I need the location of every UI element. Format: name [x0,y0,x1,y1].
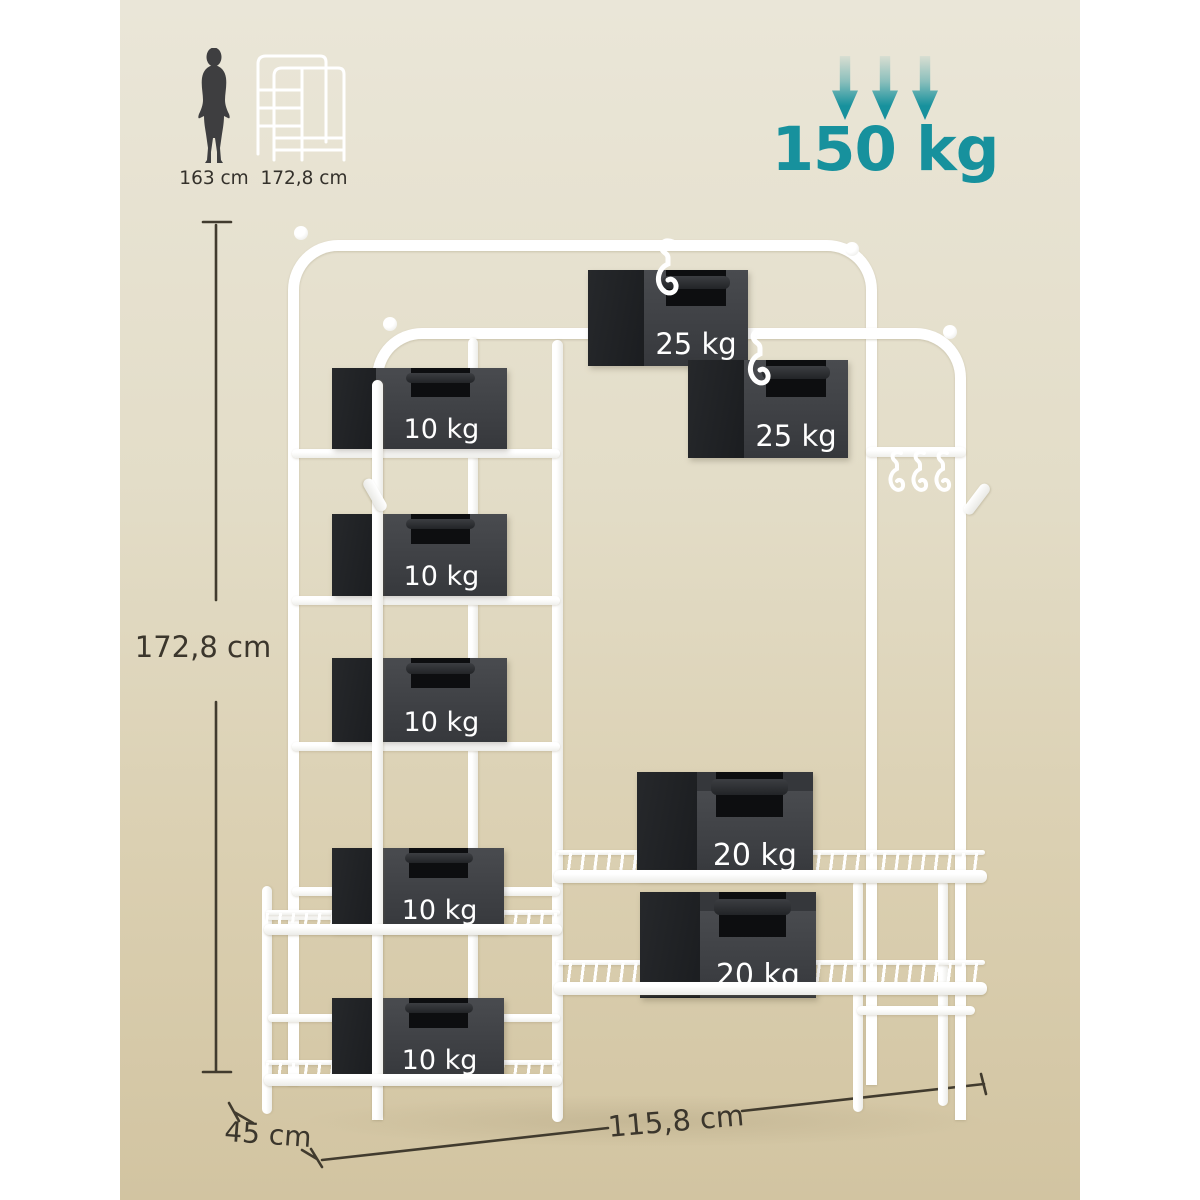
s-hook-icon [652,238,680,300]
right-bench-upper-front-bar [554,870,987,883]
weight-handle-notch [411,514,471,544]
left-bench-top-front-bar [264,924,562,935]
weight-side-face [332,368,376,449]
mini-rack-icon [250,42,354,164]
weight-handle [406,373,475,383]
right-bench-lower-front-bar [554,982,987,995]
ball-finial [383,317,397,331]
weight-handle-notch [411,658,471,688]
product-infographic: 172,8 cm 45 cm 115,8 cm 163 cm 172,8 cm … [0,0,1200,1200]
weight-handle-notch [409,848,467,878]
right-bench-side-rail [857,1006,975,1015]
weight-side-face [332,848,375,930]
height-dimension-label: 172,8 cm [120,630,286,664]
weight-handle-notch [766,360,825,397]
weight-value-label: 25 kg [644,327,748,361]
tower-shelf-bar [292,742,560,751]
s-hook-icon [744,328,772,390]
weight-side-face [332,998,375,1080]
shelf-weight-10kg: 10 kg [332,658,507,742]
rack-height-label: 172,8 cm [248,168,360,189]
max-load-label: 150 kg [770,114,1000,185]
ball-finial [294,226,308,240]
left-bench-bottom-front-bar [264,1074,562,1086]
s-hook-icon [932,450,952,498]
tower-shelf-bar [292,596,560,605]
right-bench-mid-leg [853,880,863,1112]
weight-handle-notch [409,998,467,1028]
person-silhouette-icon [186,48,242,164]
weight-handle [405,853,473,864]
ball-finial [845,242,859,256]
tower-shelf-bar [292,449,560,458]
weight-side-face [588,270,644,366]
weight-side-face [637,772,697,878]
weight-value-label: 10 kg [375,1045,504,1076]
weight-handle [405,1003,473,1014]
weight-value-label: 10 kg [375,895,504,926]
shelf-weight-10kg: 10 kg [332,514,507,596]
weight-handle [714,899,792,915]
shelf-weight-10kg: 10 kg [332,368,507,449]
weight-handle-notch [411,368,471,397]
shelf-weight-10kg: 10 kg [332,848,504,930]
weight-value-label: 20 kg [697,838,813,873]
bench-weight-20kg: 20 kg [637,772,813,878]
weight-handle [406,663,475,674]
weight-side-face [688,360,744,458]
weight-value-label: 10 kg [376,561,507,592]
weight-side-face [332,658,376,742]
shelf-weight-10kg: 10 kg [332,998,504,1080]
weight-handle [711,779,789,795]
ball-finial [943,325,957,339]
person-height-label: 163 cm [168,168,260,189]
weight-handle-notch [719,892,786,937]
weight-value-label: 10 kg [376,707,507,738]
weight-value-label: 25 kg [744,419,848,453]
weight-handle-notch [716,772,783,817]
weight-handle [406,519,475,530]
weight-side-face [332,514,376,596]
weight-value-label: 10 kg [376,414,507,445]
s-hook-icon [909,450,929,498]
s-hook-icon [886,450,906,498]
